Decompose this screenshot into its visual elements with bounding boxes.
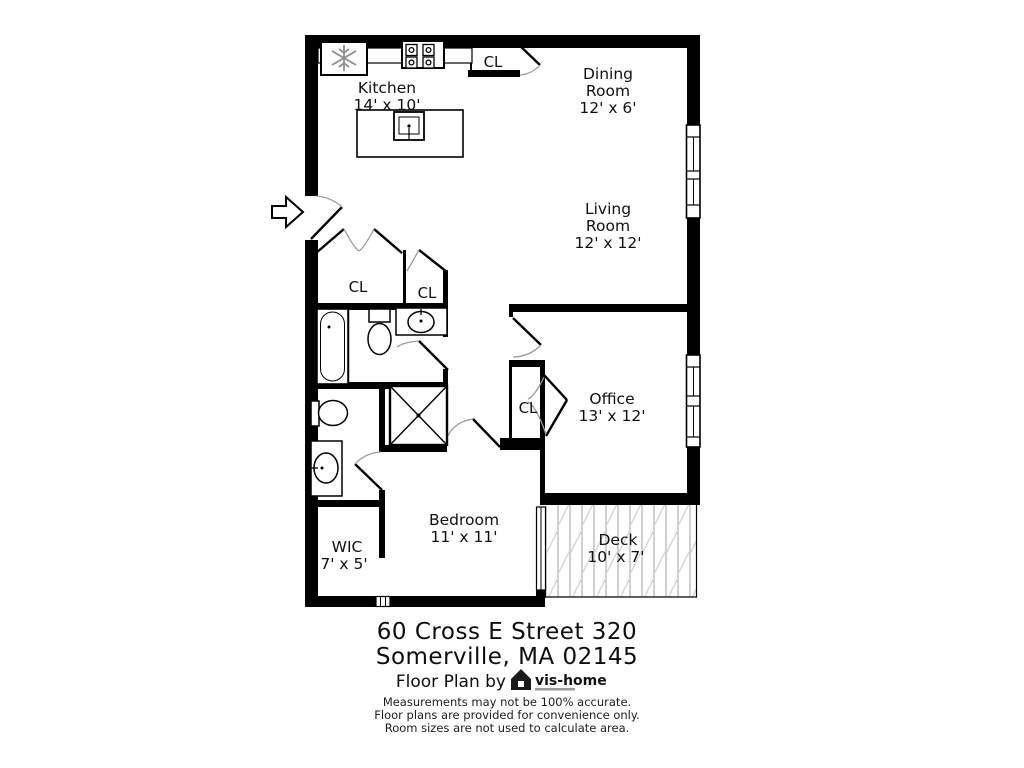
window-deck-slider — [537, 507, 546, 590]
window-bedroom-bottom — [376, 597, 390, 607]
fridge-icon — [321, 42, 367, 75]
disclaimer-line1: Measurements may not be 100% accurate. — [383, 695, 631, 709]
wall-right-b — [687, 218, 700, 355]
deck-dims: 10' x 7' — [587, 548, 644, 566]
dining-dims: 12' x 6' — [579, 99, 636, 117]
closet-top-door — [518, 44, 540, 75]
footer: 60 Cross E Street 320 Somerville, MA 021… — [374, 619, 639, 735]
closet-top-label: CL — [484, 53, 503, 71]
bedroom-dims: 11' x 11' — [431, 528, 498, 546]
living-dims: 12' x 12' — [575, 234, 642, 252]
stove-icon — [402, 41, 444, 68]
window-office — [687, 355, 701, 447]
dining-label: Dining — [583, 65, 633, 83]
shower-icon — [390, 386, 447, 445]
disclaimer-line3: Room sizes are not used to calculate are… — [385, 721, 630, 735]
closet-hall-large-label: CL — [349, 278, 368, 296]
entry-arrow-icon — [272, 197, 303, 227]
living-label: Living — [585, 200, 631, 218]
floor-plan-page: Kitchen 14' x 10' Dining Room 12' x 6' L… — [0, 0, 1024, 768]
toilet1-icon — [368, 309, 391, 355]
kitchen-dims: 14' x 10' — [354, 96, 421, 114]
wall-cltop-bottom — [468, 70, 520, 77]
wall-office-door-nub — [509, 312, 513, 317]
closet-hall-large-doors — [316, 229, 402, 253]
deck-label: Deck — [599, 531, 638, 549]
address-line1: 60 Cross E Street 320 — [377, 619, 637, 645]
wall-bath2-bottom — [305, 500, 382, 507]
wall-right-a — [687, 35, 700, 125]
office-dims: 13' x 12' — [579, 407, 646, 425]
office-label: Office — [589, 390, 634, 408]
bedroom-door — [444, 419, 500, 447]
wall-closet-divider — [403, 250, 406, 307]
living-label2: Room — [586, 217, 630, 235]
closet-hall-small-label: CL — [418, 284, 437, 302]
wall-officecl-left — [509, 367, 512, 438]
vis-home-logo-icon — [511, 669, 531, 690]
office-door — [513, 318, 541, 357]
dining-label2: Room — [586, 82, 630, 100]
sink1-icon — [396, 308, 447, 335]
bathroom2-door — [355, 452, 382, 490]
kitchen-island — [357, 110, 463, 157]
brand-text: vis-home — [535, 673, 607, 689]
entry-door — [311, 196, 342, 239]
disclaimer-line2: Floor plans are provided for convenience… — [374, 708, 639, 722]
island-sink-icon — [394, 112, 424, 140]
wic-label: WIC — [332, 538, 363, 556]
closet-office-label: CL — [519, 399, 538, 417]
wall-left-upper — [305, 35, 318, 196]
window-living — [687, 125, 701, 218]
closet-hall-small-door — [407, 250, 447, 272]
wall-officecl-bottom — [500, 438, 545, 450]
wall-officecl-top — [509, 360, 545, 367]
wic-dims: 7' x 5' — [320, 555, 367, 573]
wall-deck-top — [540, 493, 700, 505]
wall-living-office — [509, 304, 688, 312]
bedroom-label: Bedroom — [429, 511, 499, 529]
toilet2-icon — [311, 401, 348, 427]
wall-bottom-b — [390, 596, 545, 607]
wall-bottom-a — [305, 596, 376, 607]
bathtub-icon — [317, 309, 348, 384]
address-line2: Somerville, MA 02145 — [376, 644, 638, 670]
brand-tagline-bar — [535, 688, 575, 691]
sink2-icon — [311, 441, 342, 496]
floor-plan-svg: Kitchen 14' x 10' Dining Room 12' x 6' L… — [0, 0, 1024, 768]
wall-bath2-right-upper — [379, 385, 385, 452]
credit-text: Floor Plan by — [396, 672, 506, 692]
kitchen-label: Kitchen — [358, 79, 416, 97]
bathroom1-door — [397, 341, 448, 370]
